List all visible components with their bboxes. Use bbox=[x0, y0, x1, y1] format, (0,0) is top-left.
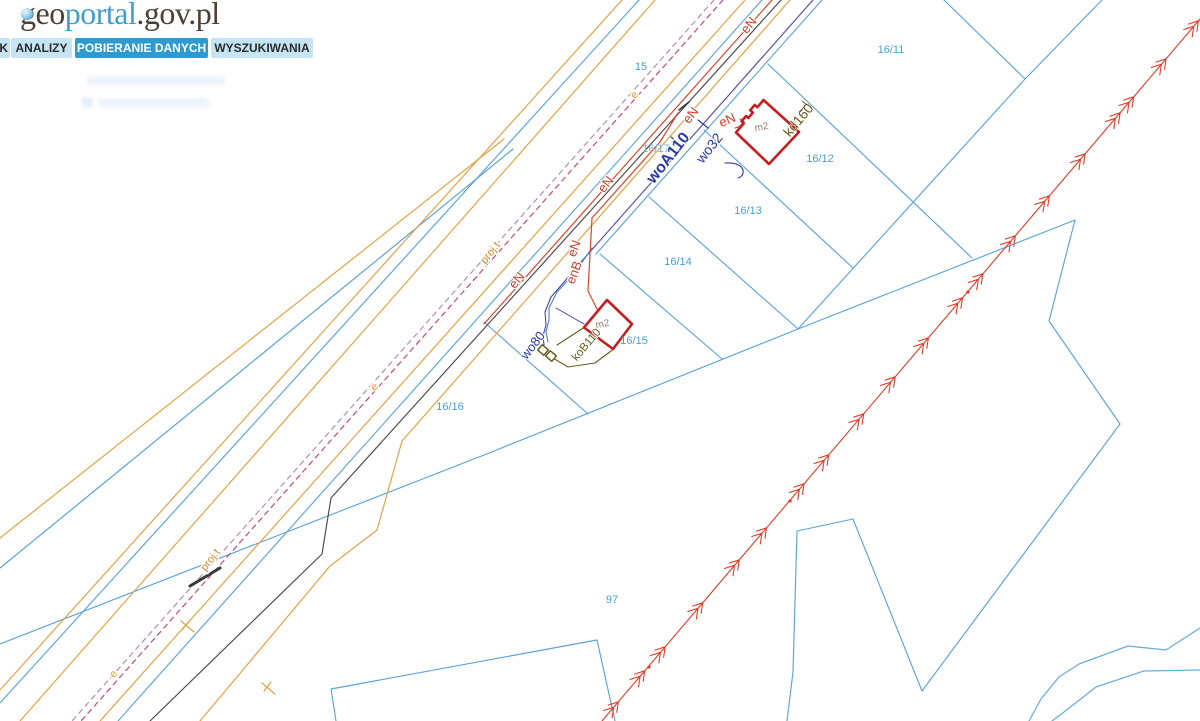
svg-text:eN: eN bbox=[505, 269, 527, 291]
svg-text:proj.t: proj.t bbox=[478, 240, 503, 267]
svg-text:15: 15 bbox=[635, 61, 647, 73]
svg-text:eN: eN bbox=[594, 173, 616, 195]
svg-text:m2: m2 bbox=[595, 318, 611, 331]
svg-text:m2: m2 bbox=[754, 121, 770, 134]
svg-text:eN: eN bbox=[717, 110, 738, 130]
svg-text:97: 97 bbox=[606, 594, 618, 606]
svg-text:16/11: 16/11 bbox=[878, 44, 905, 56]
svg-text:eN: eN bbox=[564, 238, 584, 259]
svg-text:16/15: 16/15 bbox=[620, 335, 648, 347]
svg-text:e: e bbox=[368, 381, 381, 393]
svg-text:e: e bbox=[628, 89, 641, 101]
svg-text:koB110: koB110 bbox=[570, 327, 604, 364]
svg-text:16/13: 16/13 bbox=[734, 205, 762, 217]
svg-text:16/12: 16/12 bbox=[806, 153, 834, 165]
svg-text:wo32: wo32 bbox=[692, 130, 726, 167]
svg-text:16/14: 16/14 bbox=[664, 256, 692, 268]
svg-text:enB: enB bbox=[563, 259, 585, 286]
svg-text:16/16: 16/16 bbox=[436, 401, 464, 413]
